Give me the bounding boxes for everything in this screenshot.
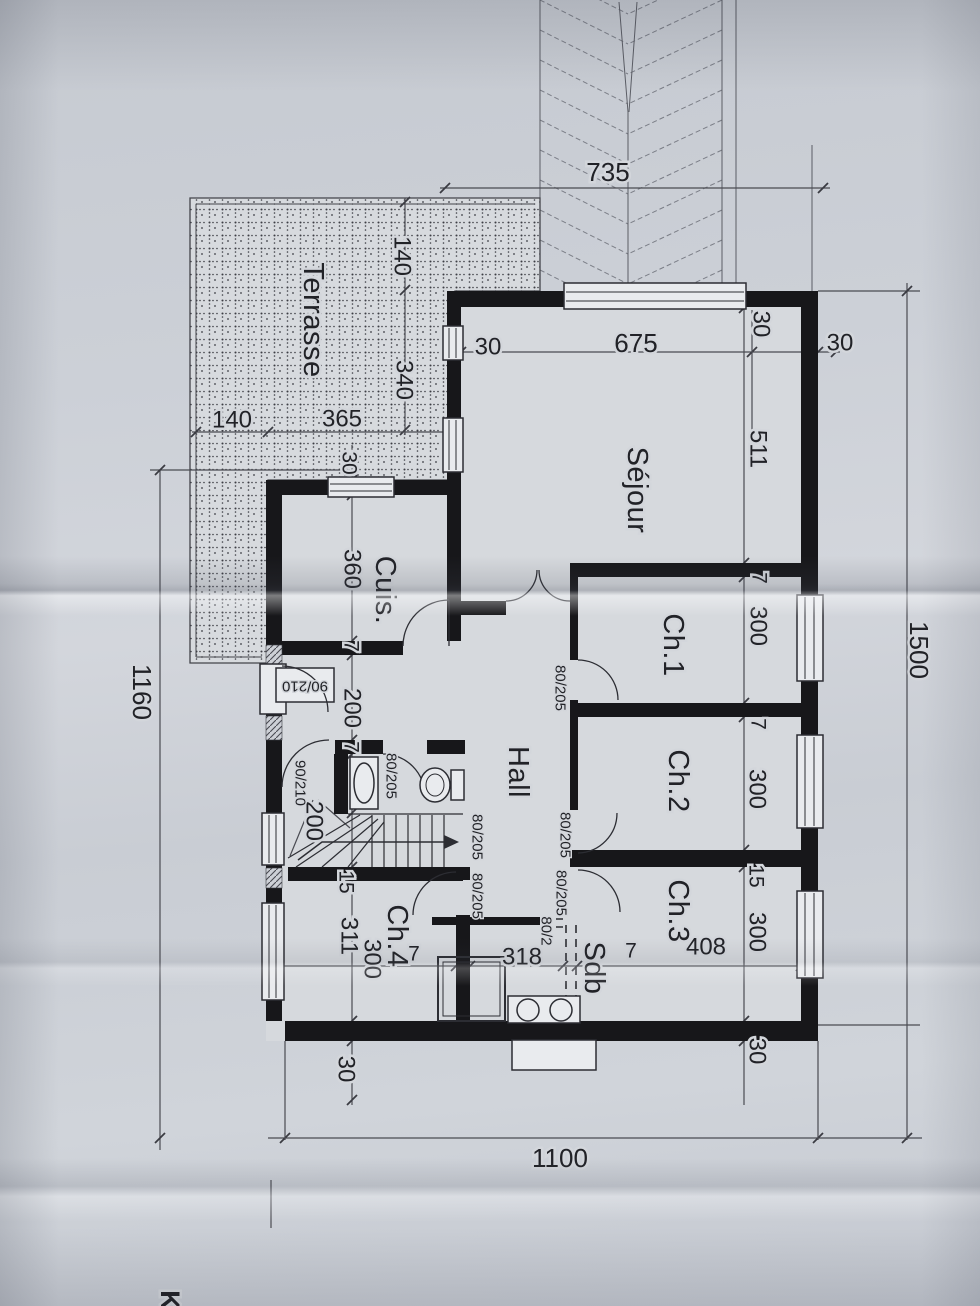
dim-terrace-140-bottom: 140	[212, 407, 252, 434]
door-size-ch3: 80/205	[553, 870, 570, 916]
door-size-vestibule: 90/210	[292, 760, 309, 806]
room-label-sejour: Séjour	[621, 447, 653, 534]
dim-ch4-311: 311	[336, 917, 363, 955]
floor-plan-drawing: Terrasse Séjour Cuis. Hall Ch.1 Ch.2 Ch.…	[0, 0, 980, 1306]
toilet-icon	[420, 768, 464, 802]
dim-bottom-30-left: 30	[333, 1056, 360, 1083]
dim-terrace-140-top: 140	[389, 236, 416, 276]
dim-terrace-30: 30	[338, 451, 361, 474]
dim-chain-7-a: 7	[340, 640, 363, 652]
dim-total-height-1500: 1500	[904, 621, 934, 679]
dim-ch3-300: 300	[744, 912, 771, 952]
dim-ch4-15: 15	[335, 870, 358, 893]
page-edge-letter: K	[155, 1290, 185, 1306]
window-sejour-west-a	[443, 326, 463, 360]
floor-plan-photo: Terrasse Séjour Cuis. Hall Ch.1 Ch.2 Ch.…	[0, 0, 980, 1306]
door-size-ch1: 80/205	[552, 665, 569, 711]
dim-ch2-300: 300	[744, 769, 771, 809]
door-size-ch2: 80/205	[557, 812, 574, 858]
window-sejour-west-b	[443, 418, 463, 472]
dim-roof-width: 735	[586, 157, 629, 187]
dim-cuisine-360: 360	[339, 549, 366, 589]
dim-terrace-365: 365	[322, 406, 362, 433]
window-ch4-west	[262, 903, 284, 1000]
window-cuisine-north	[328, 477, 394, 497]
dim-right-30-bottom: 30	[744, 1038, 771, 1065]
room-label-ch1: Ch.1	[657, 613, 689, 676]
room-label-terrasse: Terrasse	[297, 262, 329, 377]
dim-ch1-300: 300	[745, 606, 772, 646]
roof-hatching	[540, 0, 812, 314]
room-label-ch2: Ch.2	[662, 749, 694, 812]
dim-total-left-1160: 1160	[127, 664, 157, 720]
wc-washbasin-icon	[350, 757, 378, 809]
dim-wall-30-top-left: 30	[475, 334, 502, 361]
window-stair-west	[262, 813, 284, 865]
dim-sejour-width: 675	[614, 328, 657, 358]
dim-terrace-340: 340	[391, 360, 418, 400]
dim-stair-200: 200	[301, 801, 328, 841]
door-size-wc: 80/205	[383, 753, 400, 799]
room-label-sdb: Sdb	[578, 941, 610, 994]
door-size-ch4: 80/205	[469, 873, 486, 919]
dim-sdb-318: 318	[502, 944, 542, 971]
dim-chain-7-b: 7	[340, 741, 363, 753]
dim-right-7-b: 7	[747, 718, 770, 730]
window-ch2-east	[797, 735, 823, 828]
dim-ch3-7: 7	[625, 940, 637, 963]
window-ch3-east	[797, 891, 823, 978]
dim-right-7-a: 7	[748, 572, 771, 584]
dim-sejour-511: 511	[745, 430, 772, 468]
dim-chain-200: 200	[339, 688, 366, 728]
dim-wall-30-top-right-out: 30	[827, 330, 854, 357]
dim-ch3-408: 408	[686, 934, 726, 961]
door-size-entry: 90/210	[282, 678, 328, 695]
door-size-stair-hall: 80/205	[469, 814, 486, 860]
dim-wall-30-top-right-in: 30	[748, 311, 775, 338]
room-label-cuisine: Cuis.	[369, 556, 401, 625]
dim-ch4-300: 300	[359, 939, 386, 979]
window-sejour-north	[564, 283, 746, 309]
room-label-hall: Hall	[502, 746, 534, 798]
dim-ch4-7: 7	[408, 943, 420, 966]
door-size-sdb: 80/2	[538, 916, 555, 945]
dim-total-bottom-1100: 1100	[532, 1143, 588, 1173]
window-ch1-east	[797, 595, 823, 681]
dim-right-15: 15	[745, 864, 768, 887]
